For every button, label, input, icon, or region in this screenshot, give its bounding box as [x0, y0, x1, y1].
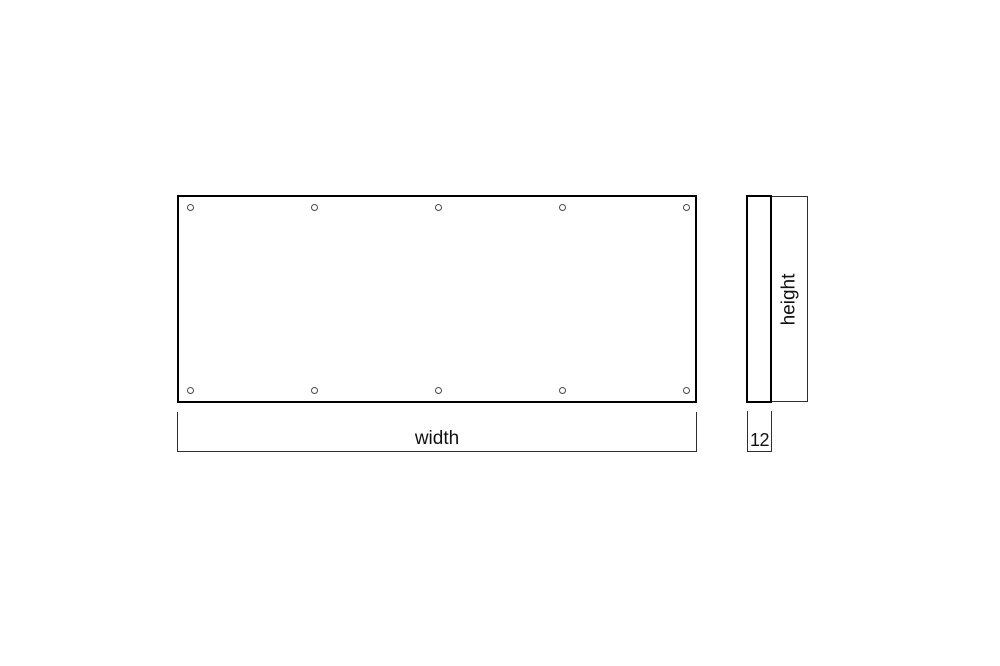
width-dimension-label: width: [415, 429, 459, 451]
mounting-hole: [435, 387, 442, 394]
mounting-hole: [311, 387, 318, 394]
mounting-hole: [683, 204, 690, 211]
height-dimension-label: height: [780, 273, 799, 325]
mounting-hole: [559, 204, 566, 211]
mounting-hole: [311, 204, 318, 211]
width-dimension-bracket: width: [177, 412, 697, 452]
front-view-panel: [177, 195, 697, 403]
mounting-hole: [187, 204, 194, 211]
mounting-hole: [435, 204, 442, 211]
mounting-hole: [683, 387, 690, 394]
side-view-panel: [746, 195, 772, 403]
thickness-dimension-bracket: 12: [747, 411, 772, 452]
height-dimension-bracket: height: [771, 196, 808, 402]
mounting-hole: [559, 387, 566, 394]
diagram-canvas: height width 12: [0, 0, 1000, 666]
mounting-hole: [187, 387, 194, 394]
thickness-dimension-label: 12: [750, 431, 769, 451]
